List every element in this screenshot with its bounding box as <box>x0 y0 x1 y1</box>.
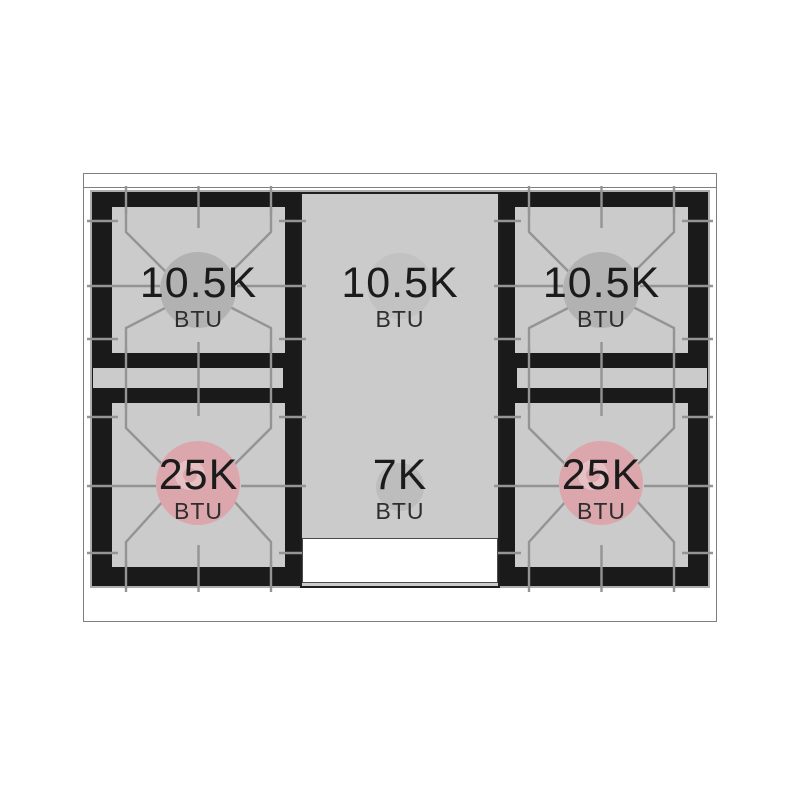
burner-unit: BTU <box>300 500 500 523</box>
burner-label-bottom-right: 25K BTU <box>515 454 688 523</box>
burner-value: 10.5K <box>112 262 285 305</box>
burner-unit: BTU <box>112 308 285 331</box>
back-trim-strip <box>83 173 717 188</box>
burner-unit: BTU <box>300 308 500 331</box>
surface-gap-right <box>517 368 707 388</box>
burner-label-top-center: 10.5K BTU <box>300 262 500 331</box>
burner-value: 10.5K <box>300 262 500 305</box>
burner-value: 25K <box>112 454 285 497</box>
burner-value: 10.5K <box>515 262 688 305</box>
surface-gap-left <box>93 368 283 388</box>
burner-label-top-left: 10.5K BTU <box>112 262 285 331</box>
burner-label-top-right: 10.5K BTU <box>515 262 688 331</box>
burner-value: 25K <box>515 454 688 497</box>
griddle-section <box>300 192 500 588</box>
griddle-tray-panel <box>302 538 498 583</box>
burner-unit: BTU <box>515 308 688 331</box>
range-cooktop-diagram: 10.5K BTU 10.5K BTU 10.5K BTU 25K BTU 7K… <box>0 0 800 800</box>
burner-label-bottom-left: 25K BTU <box>112 454 285 523</box>
burner-unit: BTU <box>515 500 688 523</box>
burner-label-bottom-center: 7K BTU <box>300 454 500 523</box>
burner-value: 7K <box>300 454 500 497</box>
burner-unit: BTU <box>112 500 285 523</box>
